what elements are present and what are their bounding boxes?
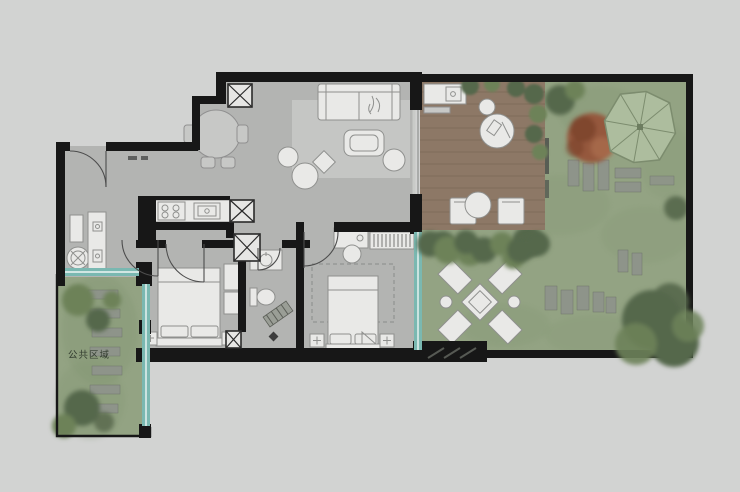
closet-icon: [224, 292, 239, 314]
window-strip: [65, 268, 139, 276]
wardrobe-icon: [370, 232, 414, 249]
garden-steps: [413, 341, 487, 362]
headboard: [156, 338, 222, 346]
side-table-icon: [278, 147, 298, 167]
shaft-icon: [230, 200, 254, 222]
deck-terrace: [420, 76, 548, 230]
bed-icon: [328, 276, 378, 346]
storage-island: [88, 212, 106, 270]
floor-plan-drawing: 公共区域: [0, 0, 740, 492]
toilet-icon: [250, 288, 275, 306]
shaft-icon: [234, 234, 260, 261]
bedroom-1-furniture: [144, 264, 239, 346]
closet-icon: [224, 264, 239, 290]
desk-chair-icon: [343, 245, 361, 263]
public-green-area: 公共区域: [52, 272, 150, 440]
armchair-icon: [292, 163, 318, 189]
kitchen-counter: [154, 200, 230, 222]
sofa-icon: [318, 84, 400, 120]
floor-plan-canvas: 公共区域: [0, 0, 740, 492]
shaft-icon: [228, 84, 252, 107]
window-strip: [142, 284, 150, 426]
shaft-icon: [226, 331, 241, 348]
pouf-icon: [383, 149, 405, 171]
public-area-label: 公共区域: [68, 349, 110, 361]
